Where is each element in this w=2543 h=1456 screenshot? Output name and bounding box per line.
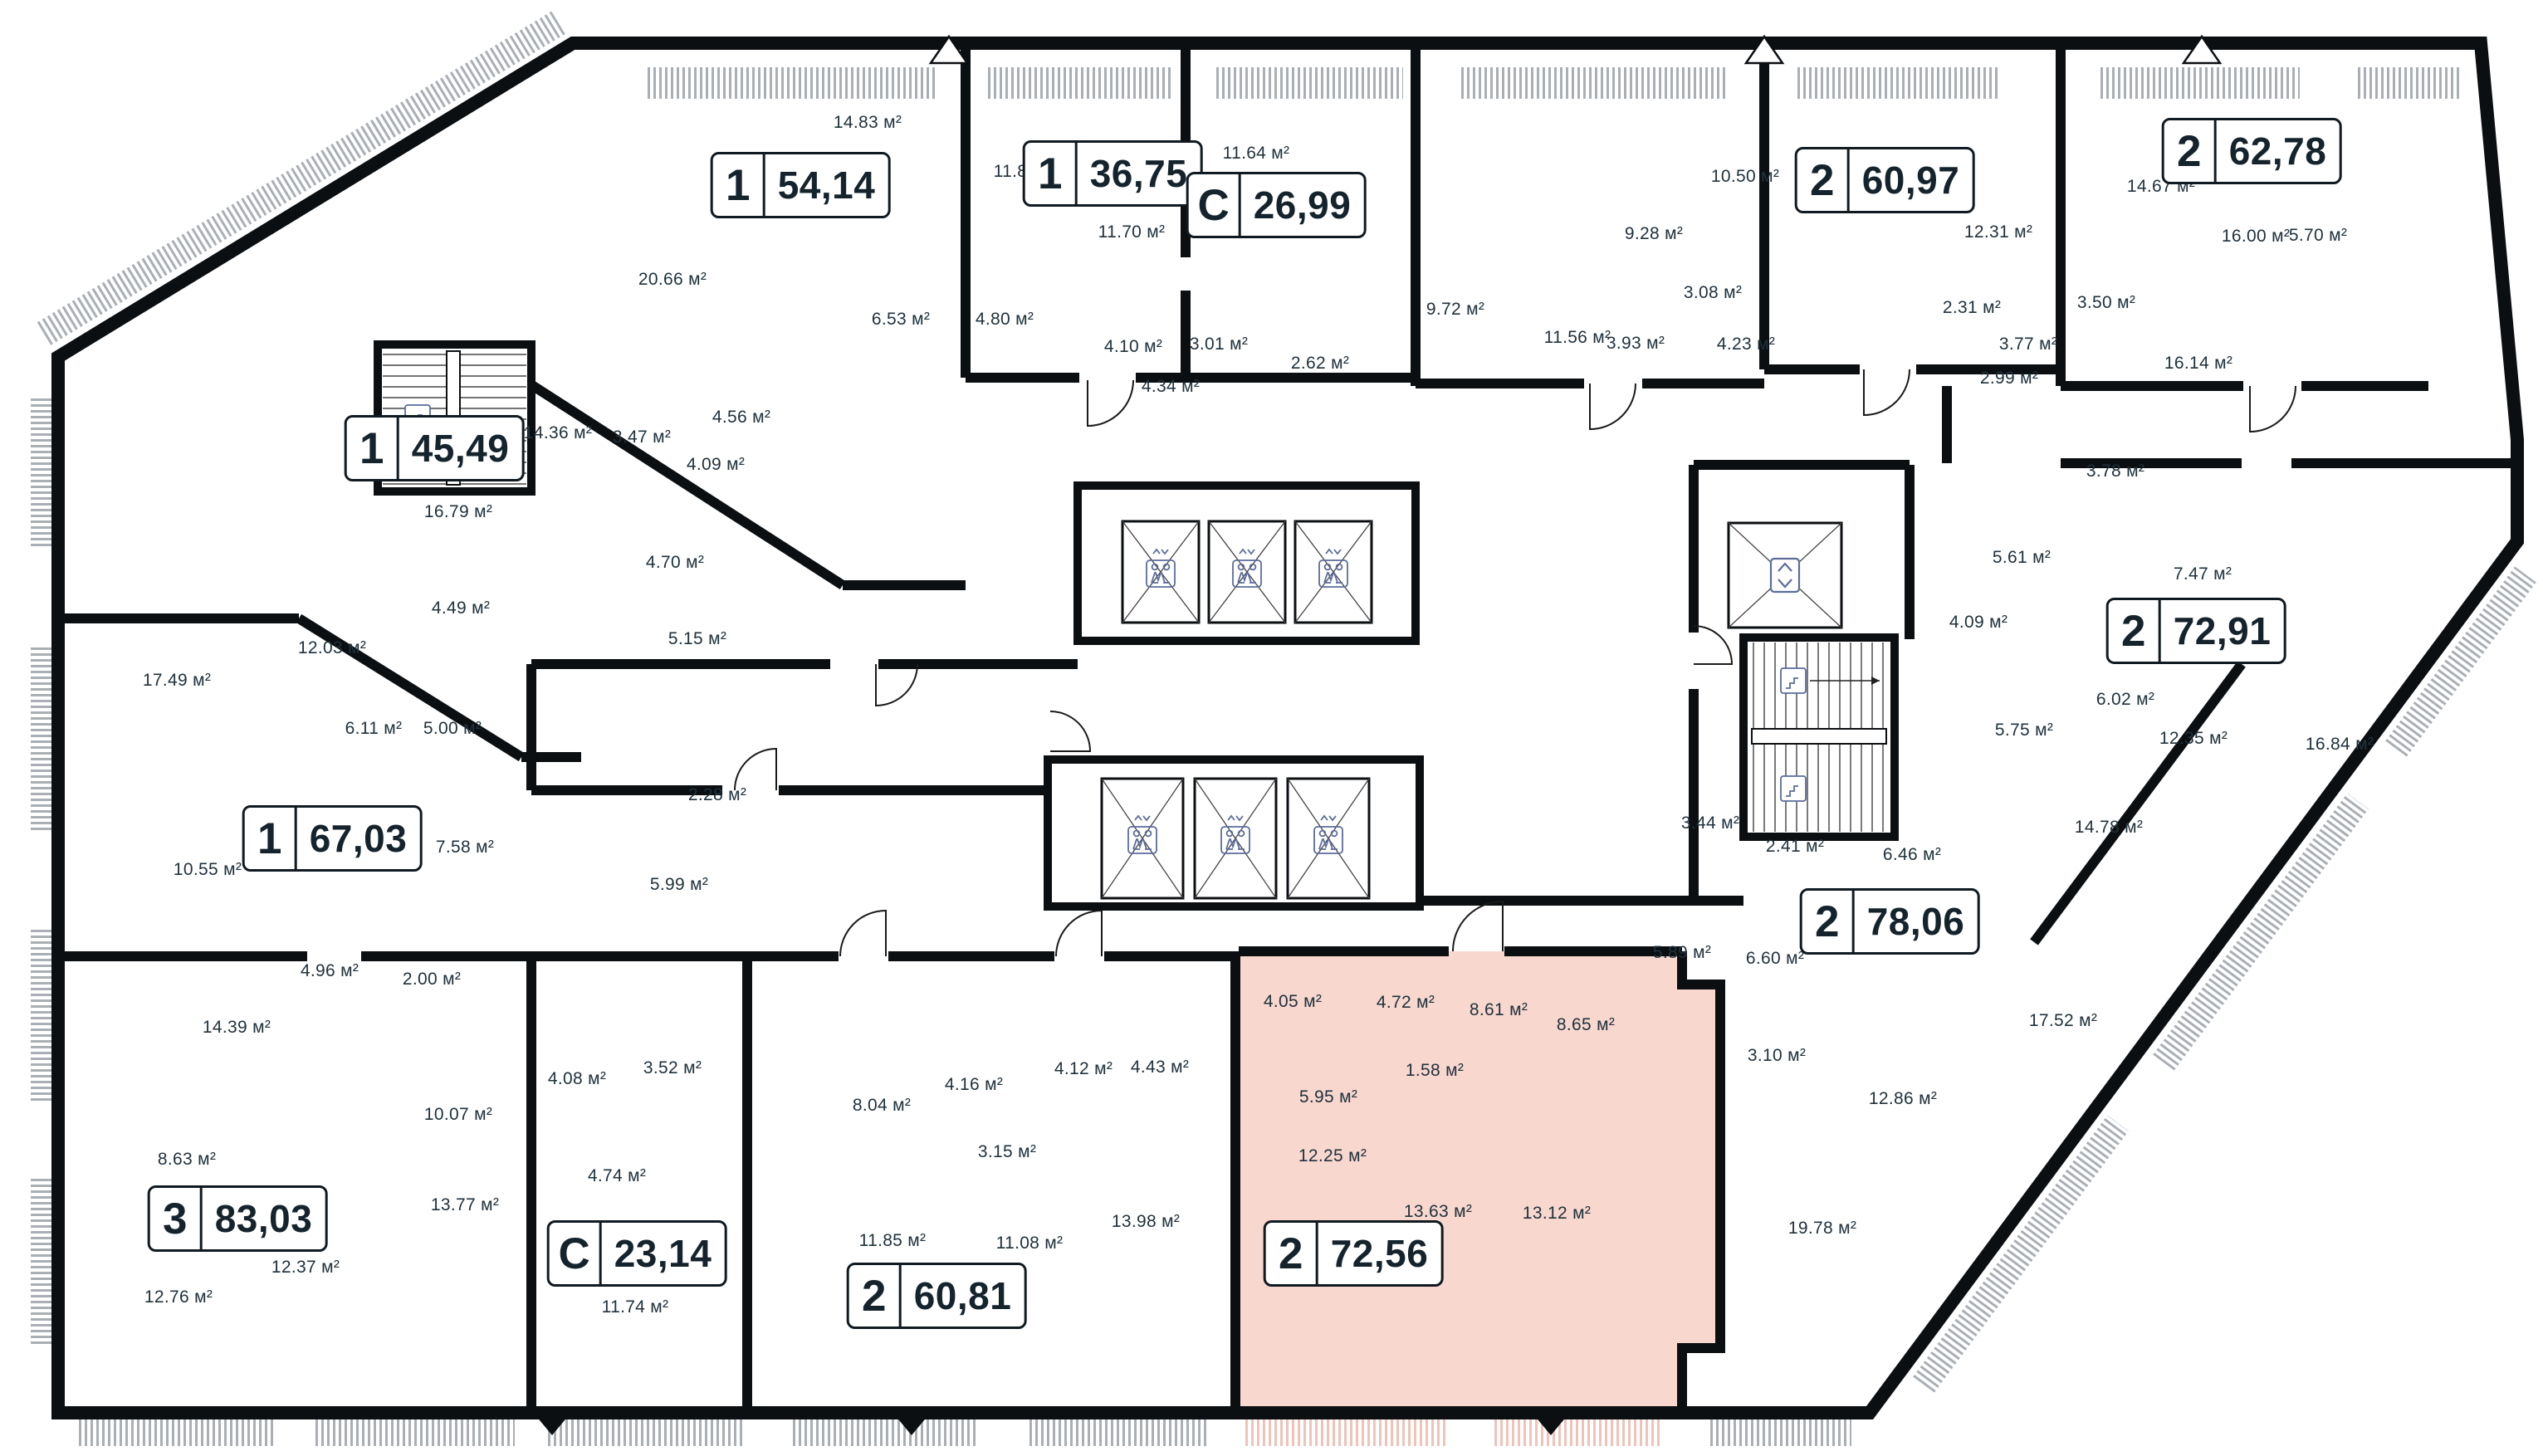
room-area-label: 3.47 м² (613, 428, 671, 447)
unit-badge[interactable]: C26,99 (1186, 172, 1367, 238)
room-area-label: 12.25 м² (1298, 1146, 1367, 1166)
room-area-label: 6.02 м² (2096, 690, 2154, 710)
unit-badge[interactable]: 262,78 (2162, 118, 2342, 184)
room-area-label: 3.50 м² (2077, 293, 2135, 313)
room-area-label: 14.78 м² (2075, 818, 2143, 838)
room-area-label: 2.31 м² (1943, 298, 2001, 318)
room-area-label: 5.15 м² (668, 629, 726, 649)
unit-rooms-count: C (1189, 174, 1241, 236)
room-area-label: 10.50 м² (1711, 167, 1779, 187)
room-area-label: 8.61 м² (1470, 1000, 1528, 1020)
unit-rooms-count: 1 (347, 418, 399, 479)
unit-total-area: 23,14 (602, 1223, 725, 1284)
room-area-label: 14.36 м² (524, 423, 592, 443)
room-area-label: 3.10 м² (1748, 1046, 1806, 1066)
unit-badge[interactable]: 260,81 (847, 1263, 1027, 1329)
room-area-label: 5.95 м² (1299, 1087, 1357, 1107)
room-area-label: 16.14 м² (2164, 354, 2232, 374)
unit-total-area: 45,49 (399, 418, 522, 479)
room-area-label: 8.65 м² (1557, 1015, 1615, 1035)
room-area-label: 4.12 м² (1054, 1059, 1113, 1079)
room-area-label: 12.31 м² (1964, 222, 2032, 242)
room-area-label: 2.28 м² (688, 785, 746, 805)
unit-total-area: 26,99 (1241, 174, 1364, 236)
room-area-label: 6.46 м² (1883, 845, 1941, 865)
unit-badge[interactable]: 154,14 (711, 152, 891, 218)
room-area-label: 11.70 м² (1098, 222, 1166, 242)
room-area-label: 14.39 м² (203, 1018, 271, 1038)
unit-rooms-count: 2 (1802, 891, 1855, 952)
room-area-label: 6.11 м² (345, 719, 403, 739)
room-area-label: 9.72 м² (1426, 300, 1484, 320)
unit-rooms-count: 2 (1797, 149, 1850, 211)
unit-rooms-count: C (550, 1223, 602, 1284)
room-area-label: 4.96 м² (301, 961, 359, 981)
room-area-label: 4.23 м² (1717, 335, 1775, 354)
unit-rooms-count: 1 (1025, 143, 1078, 204)
room-area-label: 16.84 м² (2306, 735, 2374, 755)
room-area-label: 4.72 м² (1377, 993, 1435, 1013)
room-area-label: 4.49 м² (432, 599, 490, 618)
room-area-label: 12.86 м² (1869, 1089, 1937, 1109)
unit-total-area: 60,97 (1850, 149, 1973, 211)
unit-badge[interactable]: 272,91 (2106, 598, 2286, 664)
room-area-label: 10.07 м² (424, 1105, 492, 1125)
unit-total-area: 67,03 (297, 808, 420, 869)
unit-total-area: 54,14 (765, 154, 888, 216)
room-area-label: 3.01 м² (1190, 335, 1248, 354)
room-area-label: 16.00 м² (2222, 227, 2290, 247)
floor-plan-canvas: 14.83 м²20.66 м²6.53 м²3.47 м²4.56 м²4.0… (0, 0, 2543, 1456)
room-area-label: 5.61 м² (1993, 548, 2051, 568)
room-area-label: 16.79 м² (424, 502, 492, 522)
room-area-label: 13.12 м² (1523, 1204, 1591, 1224)
unit-total-area: 72,91 (2161, 600, 2284, 662)
room-area-label: 11.64 м² (1223, 144, 1290, 164)
room-area-label: 4.05 м² (1264, 992, 1322, 1012)
room-area-label: 5.00 м² (423, 719, 482, 739)
room-area-label: 12.03 м² (298, 638, 366, 658)
unit-badge[interactable]: 167,03 (242, 805, 423, 872)
unit-badge[interactable]: 260,97 (1795, 147, 1975, 213)
room-area-label: 11.08 м² (996, 1234, 1064, 1253)
room-area-label: 4.10 м² (1104, 337, 1162, 357)
room-area-label: 4.74 м² (588, 1166, 646, 1186)
unit-total-area: 62,78 (2217, 120, 2340, 182)
unit-total-area: 60,81 (902, 1265, 1025, 1327)
room-area-label: 11.85 м² (859, 1231, 927, 1251)
room-area-label: 12.76 м² (144, 1287, 213, 1307)
room-area-label: 4.56 м² (712, 408, 770, 428)
unit-badge-highlighted[interactable]: 272,56 (1264, 1220, 1444, 1287)
unit-total-area: 83,03 (203, 1188, 325, 1249)
room-area-label: 19.78 м² (1788, 1219, 1856, 1239)
room-area-label: 7.58 м² (436, 838, 494, 857)
room-area-label: 4.70 м² (646, 553, 704, 573)
room-area-label: 13.98 м² (1112, 1212, 1180, 1232)
room-area-label: 11.56 м² (1544, 328, 1611, 348)
room-area-label: 4.09 м² (1949, 613, 2008, 633)
room-area-label: 10.55 м² (174, 860, 242, 880)
room-area-label: 6.60 м² (1746, 949, 1804, 969)
unit-total-area: 36,75 (1078, 143, 1201, 204)
room-area-label: 5.70 м² (2289, 226, 2347, 246)
room-area-label: 12.35 м² (2159, 729, 2228, 749)
room-area-label: 1.58 м² (1406, 1061, 1464, 1081)
room-area-label: 12.37 м² (271, 1258, 340, 1278)
room-area-label: 7.47 м² (2174, 564, 2232, 584)
unit-total-area: 72,56 (1318, 1223, 1441, 1284)
room-area-label: 8.63 м² (158, 1150, 216, 1170)
unit-rooms-count: 1 (713, 154, 765, 216)
unit-badge[interactable]: 278,06 (1800, 888, 1980, 955)
room-area-label: 9.28 м² (1625, 224, 1683, 244)
room-area-label: 3.77 м² (1999, 335, 2057, 354)
unit-rooms-count: 3 (150, 1188, 203, 1249)
unit-badge[interactable]: C23,14 (547, 1220, 727, 1287)
room-area-label: 4.16 м² (945, 1075, 1003, 1095)
room-area-label: 2.41 м² (1766, 837, 1824, 857)
unit-rooms-count: 2 (849, 1265, 902, 1327)
room-area-label: 3.78 м² (2086, 462, 2144, 481)
room-area-label: 3.93 м² (1606, 334, 1665, 354)
unit-rooms-count: 2 (1266, 1223, 1318, 1284)
unit-rooms-count: 1 (245, 808, 297, 869)
room-area-label: 13.77 м² (431, 1195, 499, 1215)
unit-badge[interactable]: 383,03 (148, 1185, 328, 1252)
room-area-label: 20.66 м² (638, 270, 707, 290)
unit-badge[interactable]: 145,49 (345, 415, 525, 481)
unit-total-area: 78,06 (1855, 891, 1978, 952)
room-area-label: 4.09 м² (687, 455, 745, 475)
room-area-label: 11.74 м² (602, 1297, 669, 1317)
room-area-label: 4.34 м² (1142, 377, 1200, 397)
room-area-label: 2.99 м² (1980, 369, 2038, 388)
room-area-label: 4.43 м² (1131, 1058, 1189, 1077)
room-area-label: 8.04 м² (853, 1096, 911, 1116)
room-area-label: 14.83 м² (834, 113, 902, 133)
unit-rooms-count: 2 (2164, 120, 2217, 182)
room-area-label: 5.99 м² (650, 875, 708, 895)
room-area-label: 4.08 м² (548, 1069, 606, 1089)
room-area-label: 2.62 м² (1291, 354, 1349, 374)
room-area-label: 17.52 м² (2029, 1011, 2097, 1031)
room-area-label: 17.49 м² (143, 671, 211, 691)
unit-badge[interactable]: 136,75 (1023, 140, 1203, 207)
room-area-label: 6.53 м² (872, 310, 930, 330)
room-area-label: 3.52 м² (643, 1058, 702, 1078)
room-area-label: 3.15 м² (978, 1142, 1036, 1162)
room-area-label: 2.00 м² (403, 970, 461, 989)
room-area-label: 5.75 м² (1995, 721, 2053, 740)
room-area-label: 3.44 м² (1681, 814, 1739, 833)
unit-rooms-count: 2 (2109, 600, 2161, 662)
room-area-label: 4.80 м² (976, 310, 1034, 330)
room-area-label: 5.89 м² (1653, 943, 1711, 963)
room-area-label: 3.08 м² (1684, 283, 1742, 303)
room-area-label: 13.63 м² (1404, 1202, 1472, 1222)
